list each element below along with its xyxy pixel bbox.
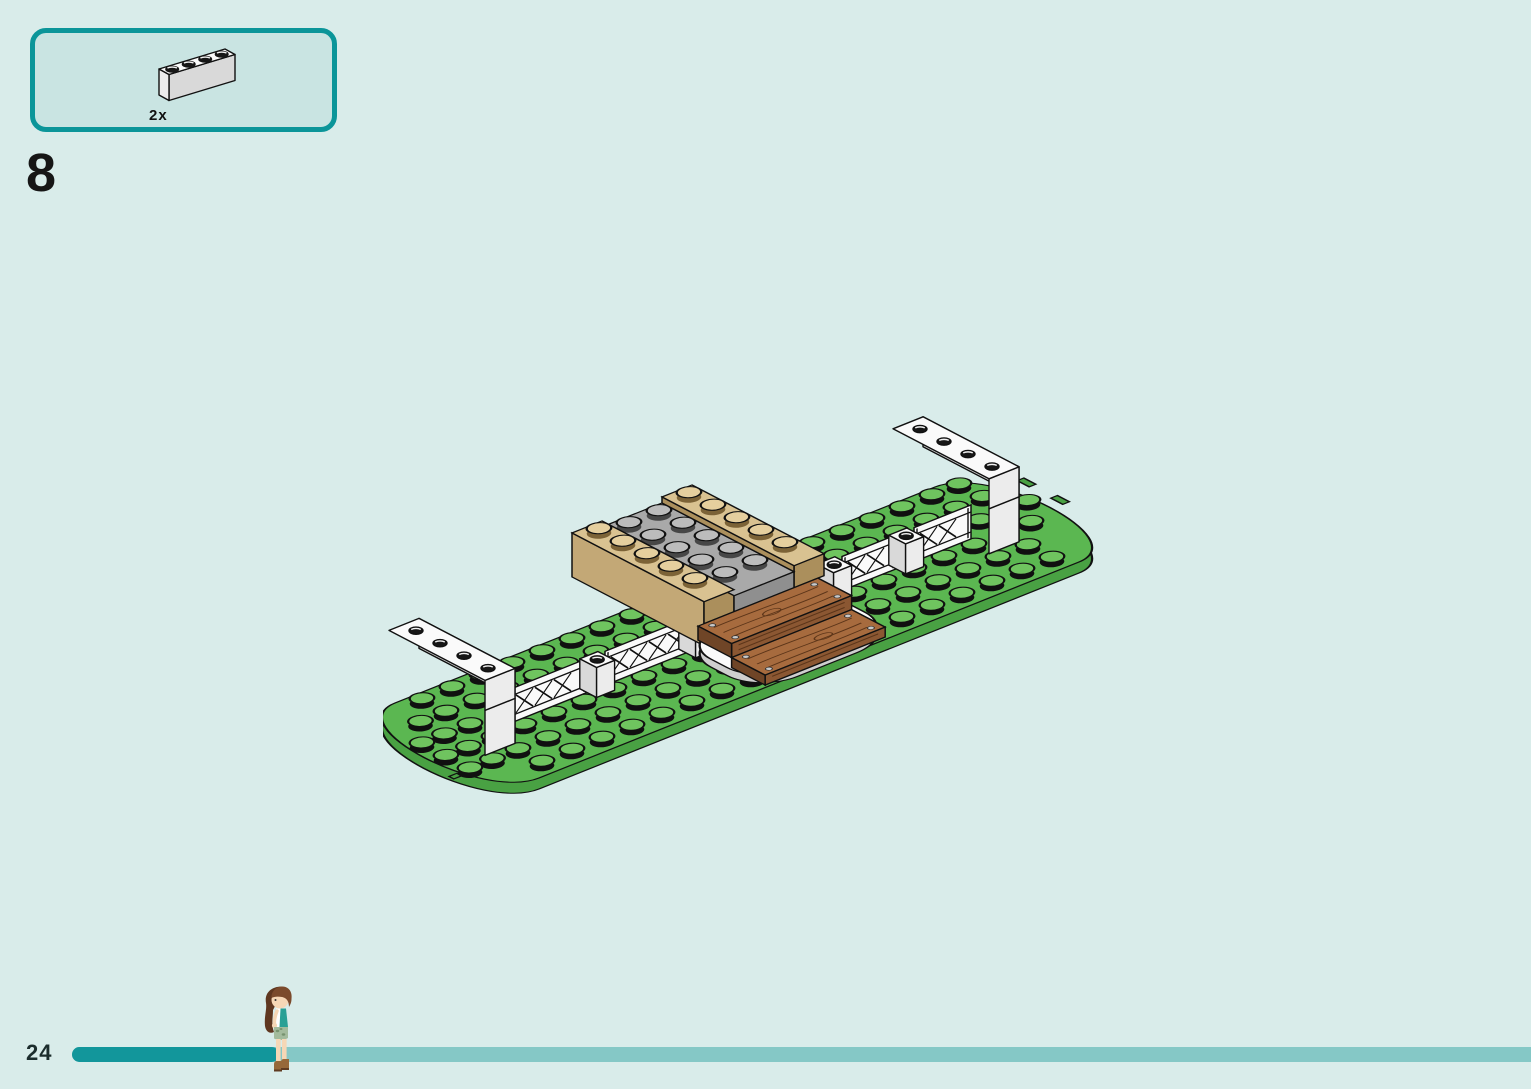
fence-post bbox=[889, 528, 924, 574]
minifigure bbox=[249, 982, 313, 1078]
instruction-page: { "step": { "number": "8" }, "parts_pane… bbox=[0, 0, 1531, 1089]
part-quantity-label: 2x bbox=[149, 107, 168, 124]
page-number: 24 bbox=[26, 1040, 52, 1066]
model-illustration bbox=[383, 413, 1113, 813]
base-tab bbox=[1017, 478, 1036, 487]
minifig-leg bbox=[282, 1039, 287, 1061]
step-number: 8 bbox=[26, 146, 56, 200]
base-tab bbox=[1051, 496, 1070, 505]
model-illustration-wrap bbox=[383, 413, 1113, 813]
minifig-boot-sole bbox=[281, 1068, 289, 1070]
minifig-boot bbox=[281, 1059, 289, 1070]
fence-post bbox=[580, 652, 615, 698]
minifig-eye bbox=[275, 999, 277, 1001]
minifig-leg bbox=[276, 1039, 281, 1063]
minifig-boot-sole bbox=[274, 1070, 282, 1072]
part-brick-1x4-white-illustration bbox=[145, 39, 255, 105]
parts-panel: 2x bbox=[30, 28, 337, 132]
progress-bar-fill bbox=[72, 1047, 279, 1062]
